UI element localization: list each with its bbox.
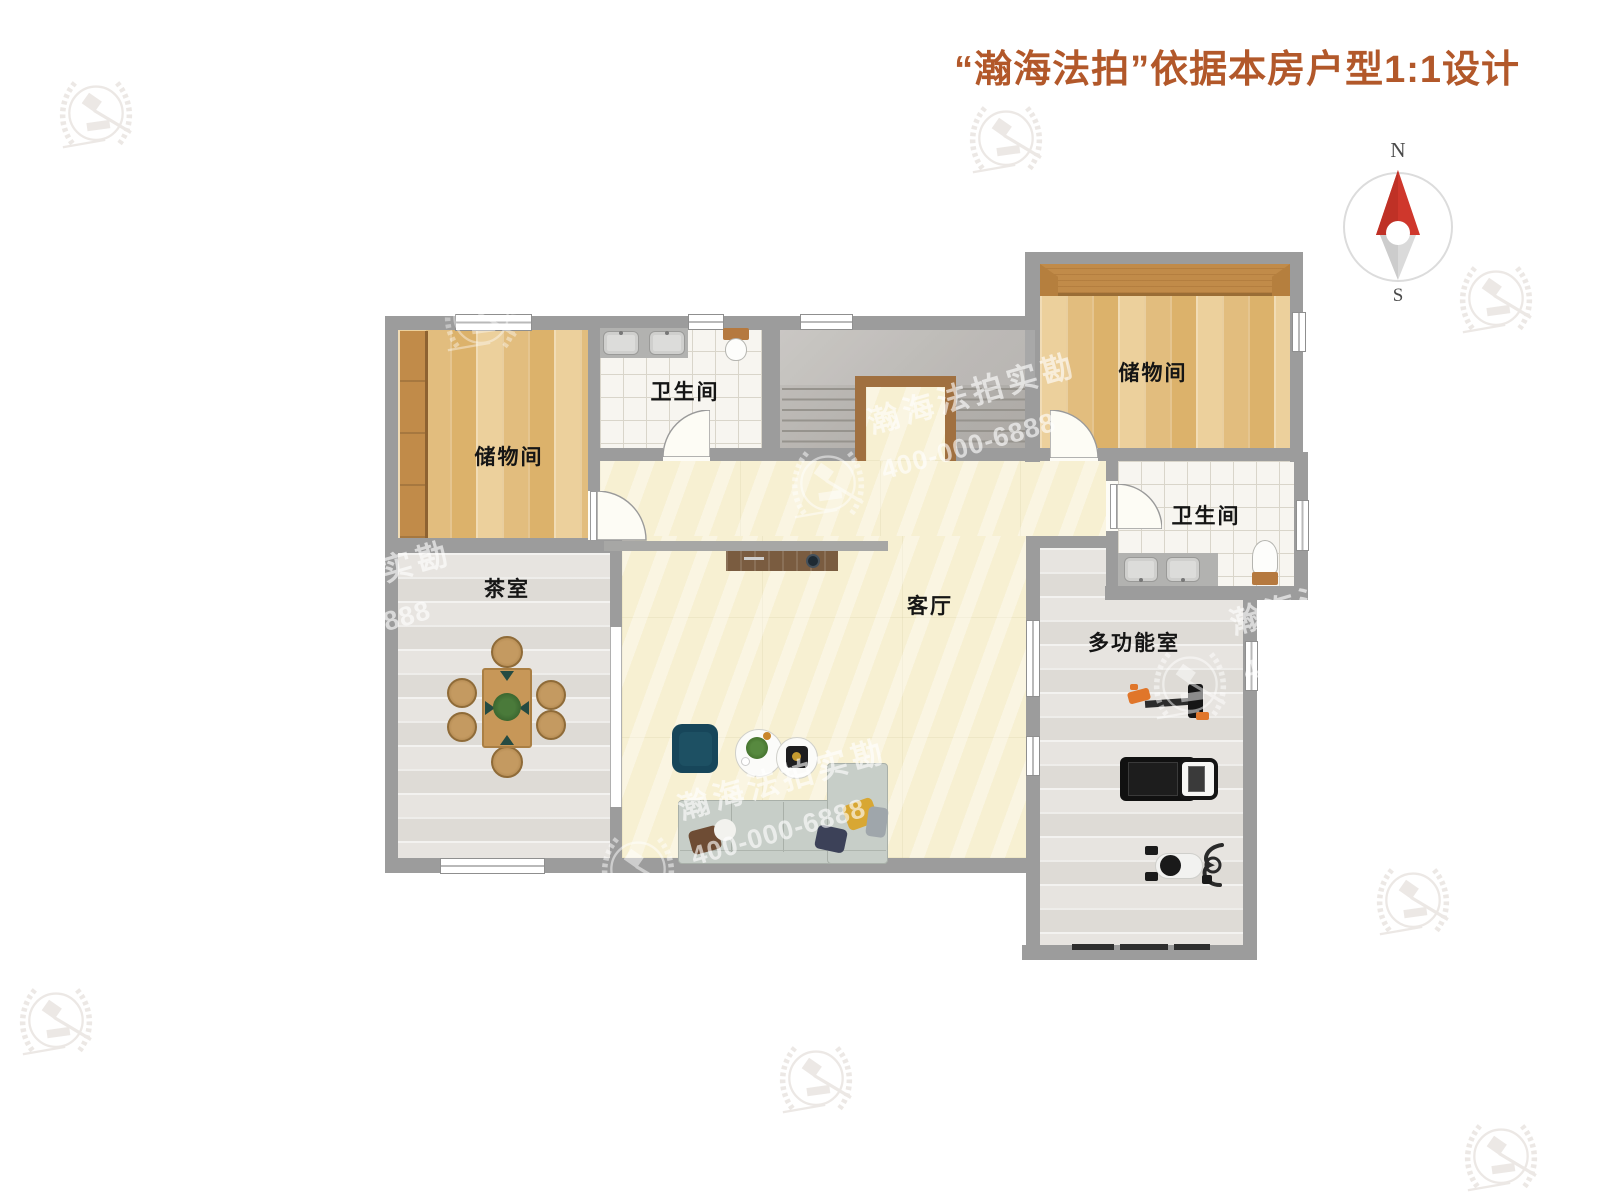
wall-hall-multi (1026, 536, 1118, 548)
background-logo-icon (435, 273, 527, 365)
compass: N S (1328, 135, 1468, 305)
chair-icon (491, 636, 523, 668)
chair-icon (447, 712, 477, 742)
pillow-icon (865, 806, 889, 838)
toilet-icon (1252, 540, 1278, 574)
watermark-logo-icon (157, 628, 249, 720)
floor-hallway (600, 461, 1106, 538)
compass-north-label: N (1390, 138, 1405, 162)
room-label-bath-top: 卫生间 (635, 376, 735, 406)
sliding-track (1072, 944, 1114, 950)
rowing-machine-foot (1196, 712, 1209, 720)
background-logo-icon (10, 977, 102, 1069)
watermark-phone: 400-000-6888 (1240, 608, 1422, 687)
sliding-track (1174, 944, 1210, 950)
background-logo-icon (770, 1035, 862, 1127)
background-logo-icon (1455, 1113, 1547, 1200)
sliding-track (1120, 944, 1168, 950)
stairwell-trim-right (945, 376, 956, 461)
door-arc-storage-right (1050, 410, 1098, 458)
faucet-icon (1139, 578, 1143, 582)
background-logo-icon (50, 70, 142, 162)
wall-storage-right-top (1025, 252, 1303, 264)
plant-icon (493, 693, 521, 721)
armchair-seat (679, 732, 712, 766)
faucet-icon (665, 331, 669, 335)
pillow-icon (714, 819, 736, 841)
toilet-tank (1252, 572, 1278, 585)
tv-console (726, 551, 838, 571)
faucet-icon (1181, 578, 1185, 582)
room-label-storage-right: 储物间 (1103, 357, 1203, 387)
window-multi-right (1245, 641, 1258, 691)
window-multi-left-a (1026, 620, 1040, 697)
exercise-bike-pedal (1145, 872, 1158, 881)
floorplan-page: 储物间 卫生间 储物间 卫生间 茶室 客厅 多功能室 瀚海法拍实勘 400-00… (0, 0, 1600, 1200)
room-label-living-room: 客厅 (885, 590, 975, 620)
wall-bath-top-right (762, 316, 780, 461)
chair-icon (447, 678, 477, 708)
door-arc-bath-top (663, 410, 710, 457)
compass-south-label: S (1393, 285, 1404, 305)
opening-tea-living (610, 627, 622, 807)
stairwell-opening (866, 387, 945, 461)
window-bath-right (1296, 500, 1309, 551)
door-leaf-storage-left (590, 491, 597, 541)
stairwell-trim-left (855, 376, 866, 461)
room-label-storage-left: 储物间 (459, 441, 559, 471)
tv-half-wall (604, 541, 888, 551)
faucet-icon (619, 331, 623, 335)
stairwell-trim-top (855, 376, 956, 387)
wall-bath-right-bottom (1105, 586, 1308, 600)
treadmill-screen (1188, 766, 1205, 792)
wardrobe-storage-left (400, 331, 428, 538)
tv-icon (806, 554, 820, 568)
wardrobe-storage-right (1040, 264, 1290, 296)
door-arc-storage-left (597, 491, 647, 541)
background-logo-icon (1367, 857, 1459, 949)
window-tea-bottom (440, 858, 545, 874)
table-decor (763, 732, 771, 740)
wall-outer-left (385, 316, 398, 873)
room-label-bath-right: 卫生间 (1156, 500, 1256, 530)
treadmill-belt (1128, 762, 1178, 796)
window-storage-right (1292, 312, 1306, 352)
rowing-machine-foot (1130, 684, 1138, 690)
cup-icon (741, 757, 750, 766)
page-title: “瀚海法拍”依据本房户型1:1设计 (820, 38, 1520, 93)
exercise-bike-pedal (1145, 846, 1158, 855)
chair-icon (491, 746, 523, 778)
exercise-bike-handle (1196, 841, 1230, 889)
background-logo-icon (960, 95, 1052, 187)
room-label-tea-room: 茶室 (467, 573, 547, 603)
room-label-multi-room: 多功能室 (1064, 627, 1204, 657)
window-stairs-top (800, 314, 853, 330)
chair-icon (536, 680, 566, 710)
chair-icon (536, 710, 566, 740)
window-multi-left-b (1026, 736, 1040, 776)
plant-icon (746, 737, 768, 759)
tray-decor (792, 752, 801, 761)
sofa-seam (783, 802, 784, 852)
window-bath-top (688, 314, 724, 330)
exercise-bike-seat (1160, 855, 1181, 876)
door-leaf-bath-right (1110, 484, 1117, 529)
console-decor (744, 557, 764, 560)
wall-storage-left-bottom (385, 538, 622, 553)
wall-storage-right-right (1290, 252, 1303, 462)
toilet-icon (725, 338, 747, 361)
